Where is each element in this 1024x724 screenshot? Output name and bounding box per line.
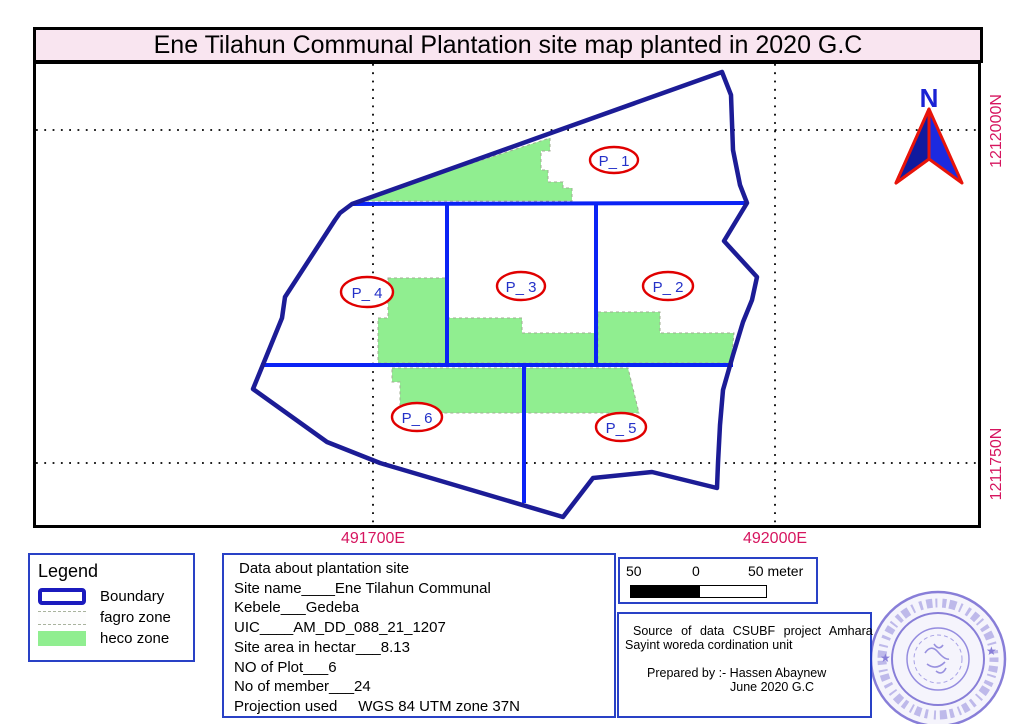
plot-label-p6: P_ 6 <box>392 403 442 431</box>
data-line-members: No of member___24 <box>234 677 614 697</box>
stamp-star-right-icon: ★ <box>986 644 997 658</box>
scale-bar <box>630 585 767 598</box>
data-line-kebele: Kebele___Gedeba <box>234 598 614 618</box>
scale-bar-box: 50 0 50 meter <box>618 557 818 604</box>
data-line-projection: Projection used WGS 84 UTM zone 37N <box>234 697 614 717</box>
plot-text-p6: P_ 6 <box>402 410 433 427</box>
legend-item-boundary: Boundary <box>38 588 193 605</box>
legend-label-heco: heco zone <box>100 630 169 647</box>
plot-text-p5: P_ 5 <box>606 420 637 437</box>
plot-label-p1: P_ 1 <box>590 147 638 173</box>
legend-label-fagro: fagro zone <box>100 609 171 626</box>
data-line-title: Data about plantation site <box>234 559 614 579</box>
scale-label-left: 50 <box>626 563 642 579</box>
scale-labels: 50 0 50 meter <box>620 563 816 581</box>
plantation-data-box: Data about plantation site Site name____… <box>222 553 616 718</box>
plot-label-p3: P_ 3 <box>497 272 545 300</box>
plot-text-p3: P_ 3 <box>506 279 537 296</box>
legend-title: Legend <box>38 561 193 582</box>
data-line-site-name: Site name____Ene Tilahun Communal <box>234 579 614 599</box>
grid-label-491700E: 491700E <box>323 530 423 548</box>
plot-label-p2: P_ 2 <box>643 272 693 300</box>
stamp-star-left-icon: ★ <box>880 651 891 665</box>
plot-label-p4: P_ 4 <box>341 277 393 307</box>
grid-label-1212000N: 1212000N <box>988 81 1006 181</box>
plot-text-p1: P_ 1 <box>599 153 630 170</box>
grid-label-1211750N: 1211750N <box>988 414 1006 514</box>
legend-item-fagro: fagro zone <box>38 609 193 626</box>
scale-label-right: 50 meter <box>748 563 803 579</box>
source-text: Source of data CSUBF project Amhara Sayi… <box>619 614 870 694</box>
stamp-seal: ★ ★ <box>871 592 1005 724</box>
data-line-uic: UIC____AM_DD_088_21_1207 <box>234 618 614 638</box>
plot-label-p5: P_ 5 <box>596 413 646 441</box>
boundary-swatch-icon <box>38 588 86 605</box>
grid-label-492000E: 492000E <box>725 530 825 548</box>
plot-text-p4: P_ 4 <box>352 285 383 302</box>
fagro-swatch-icon <box>38 611 86 625</box>
legend-item-heco: heco zone <box>38 630 193 647</box>
source-line-1: Source of data CSUBF project Amhara <box>625 624 864 638</box>
heco-swatch-icon <box>38 631 86 646</box>
prepared-by: Prepared by :- Hassen Abaynew <box>625 666 864 680</box>
data-line-site-area: Site area in hectar___8.13 <box>234 638 614 658</box>
legend-label-boundary: Boundary <box>100 588 164 605</box>
scale-bar-black-segment <box>631 586 700 597</box>
source-line-2: Sayint woreda cordination unit <box>625 638 864 652</box>
scale-label-zero: 0 <box>692 563 700 579</box>
scale-bar-white-segment <box>700 586 766 597</box>
legend-box: Legend Boundary fagro zone heco zone <box>28 553 195 662</box>
source-box: Source of data CSUBF project Amhara Sayi… <box>617 612 872 718</box>
page: Ene Tilahun Communal Plantation site map… <box>0 0 1024 724</box>
prepared-date: June 2020 G.C <box>625 680 864 694</box>
plot-text-p2: P_ 2 <box>653 279 684 296</box>
data-line-no-of-plot: NO of Plot___6 <box>234 658 614 678</box>
plantation-data-lines: Data about plantation site Site name____… <box>224 555 614 717</box>
